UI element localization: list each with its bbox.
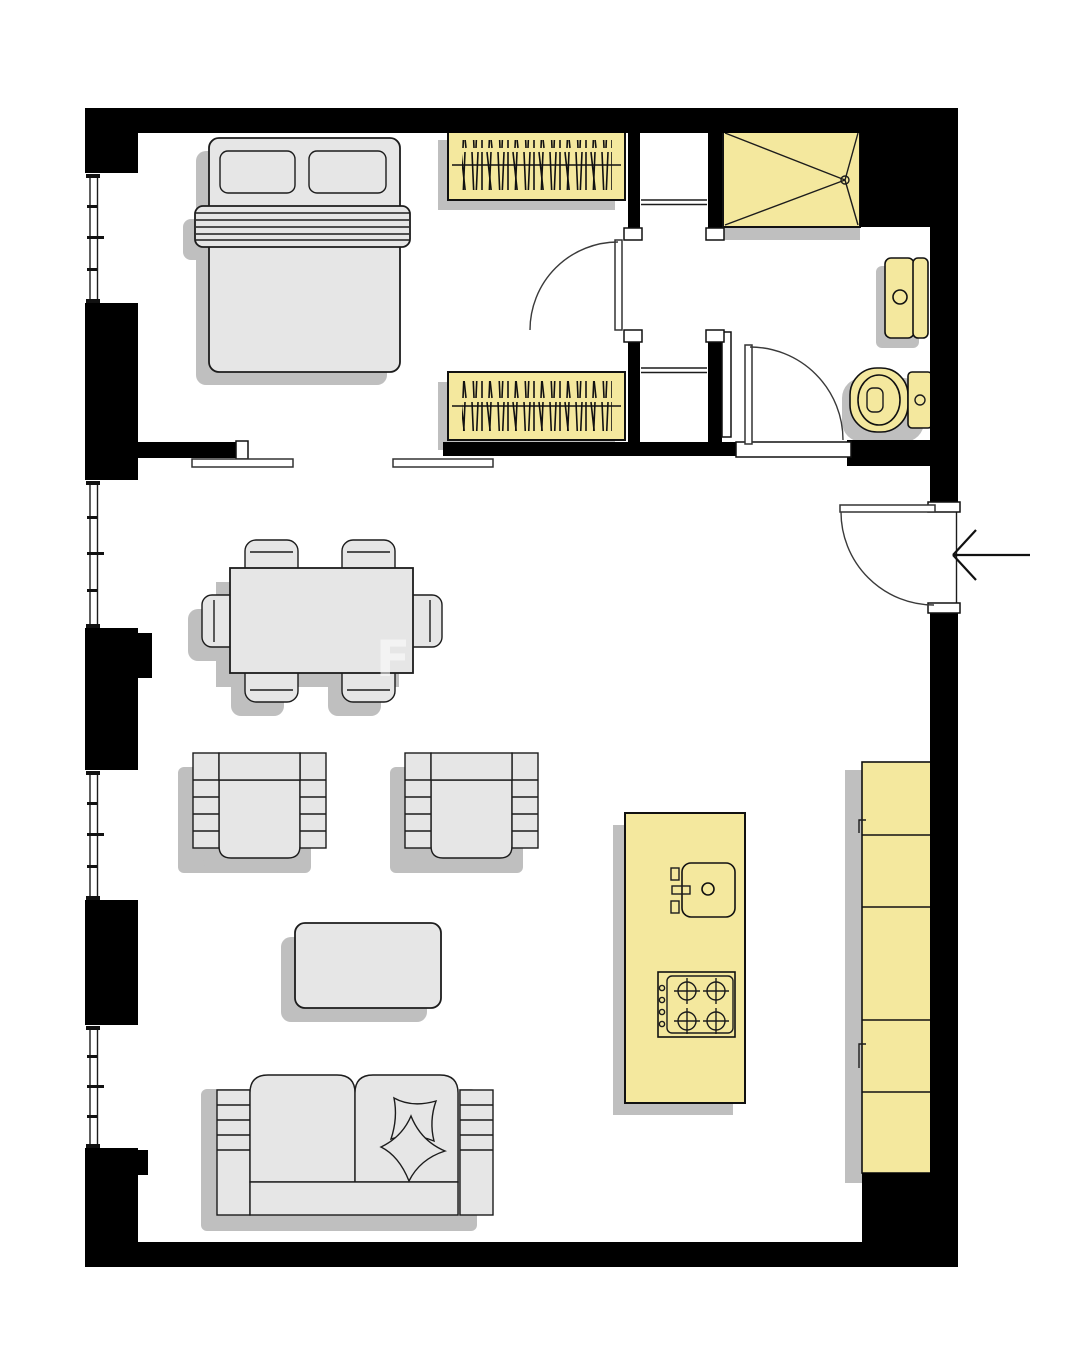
sofa-seat (250, 1182, 458, 1215)
door-frame-stub (706, 228, 724, 240)
armchair-left (193, 753, 326, 858)
door-frame-stub (624, 330, 642, 342)
door-frame-stub (706, 330, 724, 342)
wall-pier (138, 633, 152, 678)
wall-right (930, 108, 958, 502)
toilet (850, 368, 932, 432)
wall-hall-left (628, 133, 640, 228)
wall-corner-chunk (862, 1173, 958, 1252)
sliding-panel (393, 459, 493, 467)
wardrobe-lower (448, 372, 625, 440)
armchair-seat (431, 780, 512, 858)
wall-bedroom-divider (443, 442, 740, 456)
sofa (217, 1075, 493, 1215)
sofa-back-cushion (250, 1075, 355, 1182)
armchair-back (431, 753, 512, 780)
watermark: F (376, 630, 410, 688)
wall-shaft (860, 108, 930, 227)
armchair-arm (193, 753, 219, 848)
wall-bathroom-south (847, 440, 930, 466)
armchair-back (219, 753, 300, 780)
sofa-arm (217, 1090, 250, 1215)
wall-left (85, 108, 138, 173)
washbasin (885, 258, 928, 338)
window (84, 1025, 138, 1148)
door-leaf (745, 345, 752, 444)
entrance-arrow (953, 530, 1030, 580)
pillow (220, 151, 295, 193)
wall-pier (137, 1150, 148, 1175)
double-bed (195, 138, 410, 372)
wall-bottom (85, 1242, 958, 1267)
wall-hall-right (708, 133, 722, 228)
window (84, 770, 138, 900)
window (84, 480, 138, 628)
armchair-arm (405, 753, 431, 848)
armchair-arm (300, 753, 326, 848)
door-frame-stub (624, 228, 642, 240)
door-frame-stub (236, 441, 248, 459)
pillow (309, 151, 386, 193)
armchair-arm (512, 753, 538, 848)
kitchen-island (625, 813, 745, 1103)
blanket-band (195, 206, 410, 247)
window (84, 173, 138, 303)
kitchen-counter (859, 762, 933, 1173)
shower (723, 131, 860, 227)
wall-bedroom-divider (138, 442, 243, 458)
coffee-table (295, 923, 441, 1008)
thin-partition (722, 332, 731, 437)
door-leaf (615, 240, 622, 330)
floor-plan: F (0, 0, 1068, 1354)
armchair-right (405, 753, 538, 858)
door-leaf (840, 505, 935, 512)
wall-top (85, 108, 958, 133)
toilet-tank (908, 372, 932, 428)
wardrobe-upper (448, 130, 625, 200)
sofa-arm (460, 1090, 493, 1215)
door-threshold (736, 442, 851, 457)
sliding-panel (192, 459, 293, 467)
armchair-seat (219, 780, 300, 858)
